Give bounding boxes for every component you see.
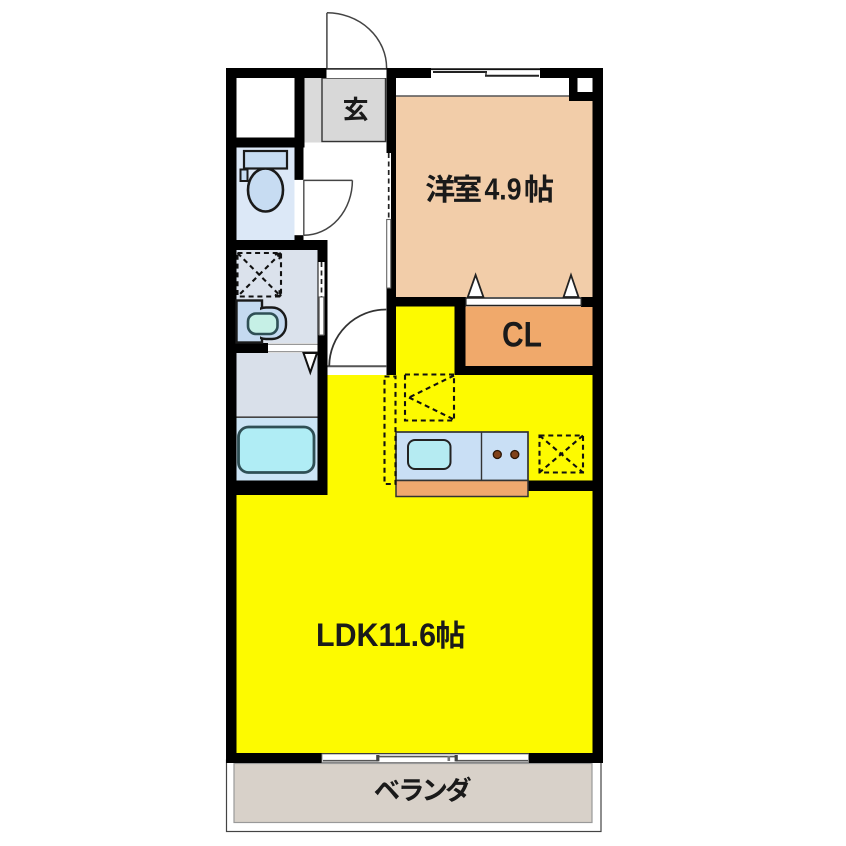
svg-text:CL: CL (502, 316, 542, 355)
svg-text:4.9: 4.9 (485, 172, 522, 207)
svg-text:LDK11.6: LDK11.6 (316, 617, 436, 653)
